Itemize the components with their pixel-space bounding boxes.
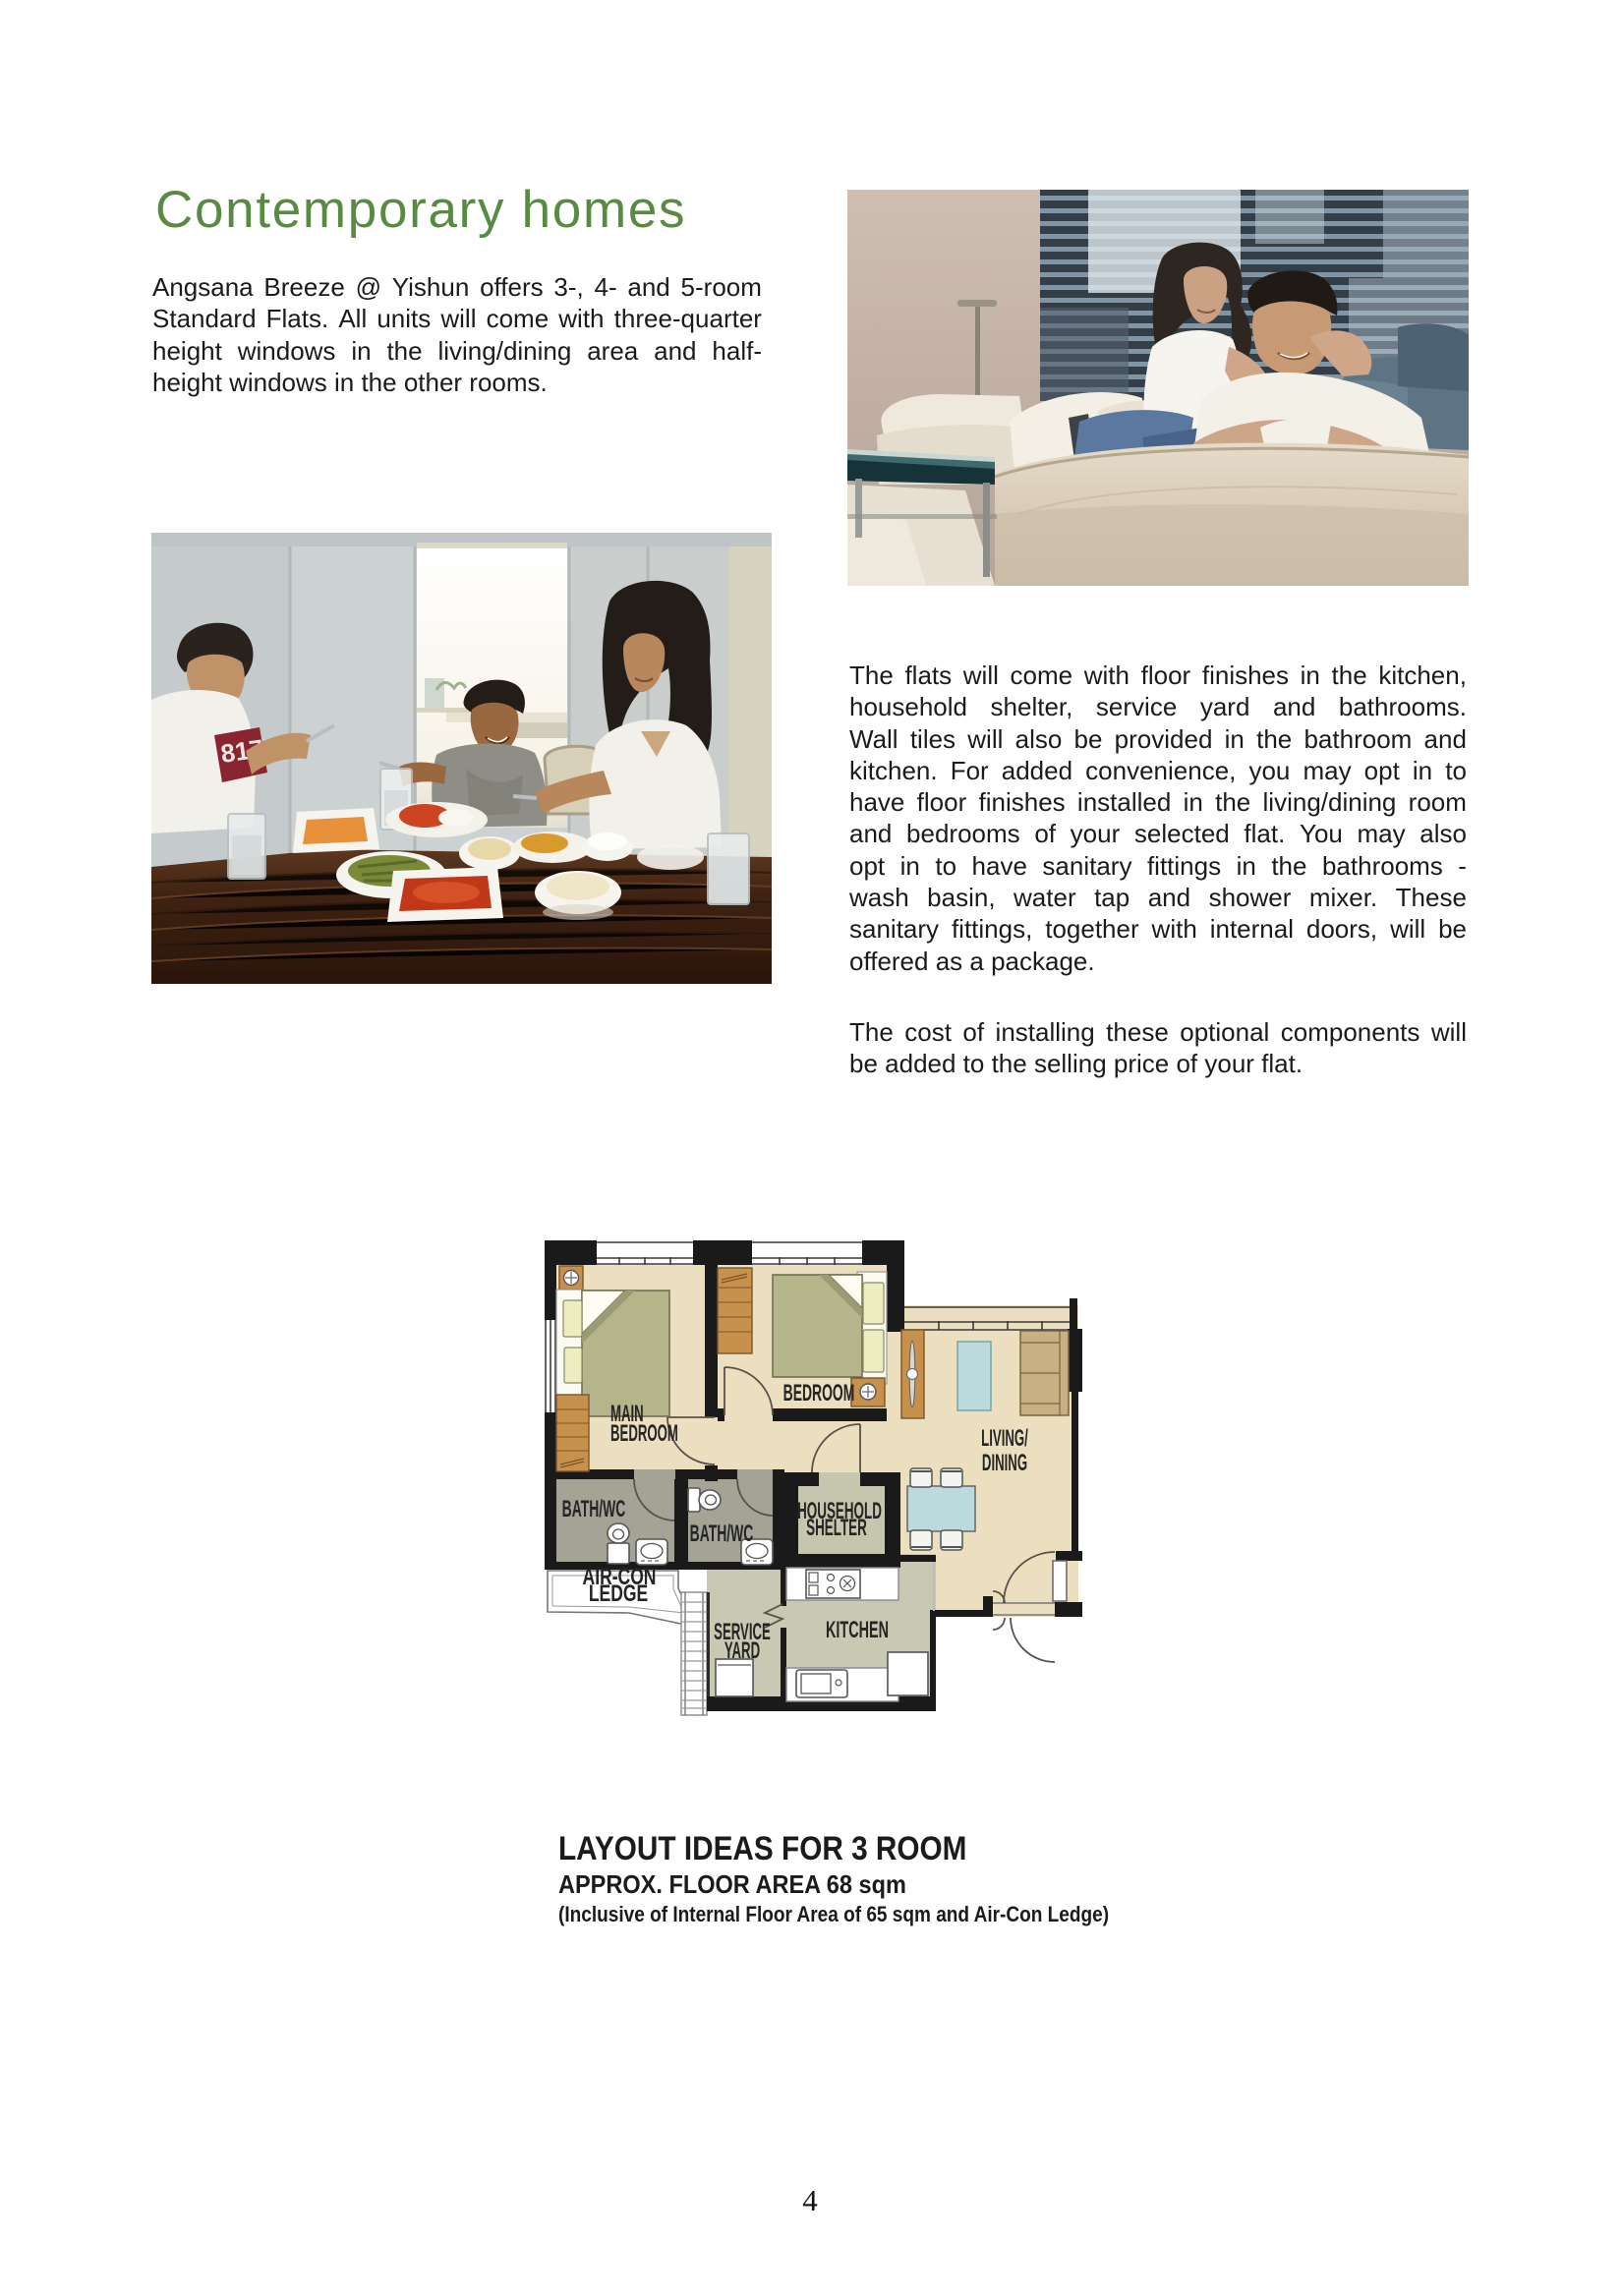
- svg-text:BEDROOM: BEDROOM: [610, 1420, 678, 1447]
- svg-text:BEDROOM: BEDROOM: [783, 1380, 855, 1406]
- svg-text:YARD: YARD: [724, 1637, 760, 1664]
- svg-text:KITCHEN: KITCHEN: [826, 1617, 889, 1643]
- svg-text:BATH/WC: BATH/WC: [562, 1496, 626, 1522]
- svg-text:SHELTER: SHELTER: [806, 1515, 867, 1541]
- svg-text:LIVING/: LIVING/: [981, 1425, 1028, 1452]
- svg-text:LEDGE: LEDGE: [589, 1580, 648, 1606]
- svg-text:BATH/WC: BATH/WC: [690, 1521, 754, 1547]
- svg-text:DINING: DINING: [982, 1450, 1027, 1476]
